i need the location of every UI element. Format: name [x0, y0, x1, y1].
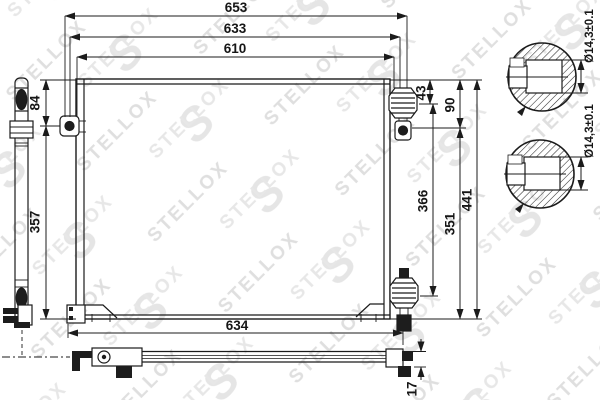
dim-right-port-offset: 43	[414, 85, 429, 101]
profile-left-foot	[116, 366, 132, 378]
dim-left-upper: 84	[28, 95, 43, 111]
dim-right-mid-span: 366	[416, 189, 431, 212]
dim-right-lower-span: 351	[443, 212, 458, 235]
drier-outlet-pipe	[3, 308, 18, 314]
drier-top-fitting	[16, 90, 26, 110]
profile-right-fitting	[386, 349, 403, 367]
dim-profile-thickness: 17	[405, 381, 420, 396]
dim-detail-top-diameter: Ø14,3±0.1	[584, 9, 596, 63]
drier-foot	[14, 322, 30, 328]
dim-left-lower: 357	[28, 211, 43, 234]
dim-bottom-width: 634	[226, 318, 249, 333]
dim-top-inner: 610	[224, 41, 247, 56]
dim-overall-height: 441	[460, 188, 475, 211]
drier-outlet-pipe	[3, 316, 18, 323]
dim-top-overall: 653	[225, 0, 248, 15]
drier-bracket	[10, 121, 33, 138]
dim-right-connector-offset: 90	[443, 97, 458, 112]
condenser-drawing: STELLOX S STELLOX	[0, 0, 600, 400]
dim-detail-bottom-diameter: Ø14,3±0.1	[584, 104, 596, 158]
dim-top-mid: 633	[224, 21, 247, 36]
technical-drawing-canvas: STELLOX S STELLOX	[0, 0, 600, 400]
